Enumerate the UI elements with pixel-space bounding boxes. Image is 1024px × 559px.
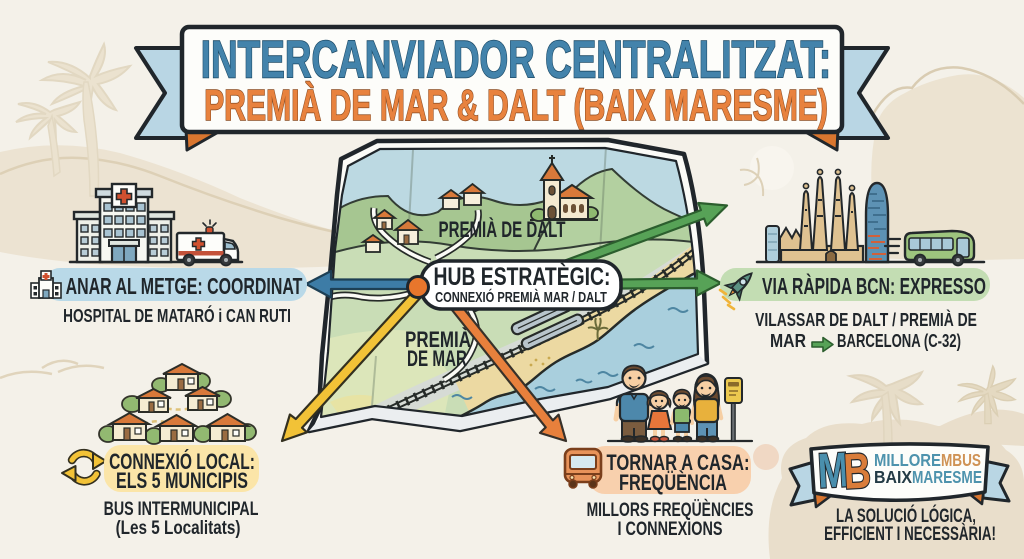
svg-text:I CONNEXIONS: I CONNEXIONS bbox=[618, 518, 723, 539]
svg-text:FREQÜÈNCIA: FREQÜÈNCIA bbox=[619, 470, 727, 496]
svg-text:CONNEXIÓ PREMIÀ MAR / DALT: CONNEXIÓ PREMIÀ MAR / DALT bbox=[435, 289, 607, 306]
svg-text:ELS 5 MUNICIPIS: ELS 5 MUNICIPIS bbox=[116, 470, 248, 494]
svg-text:HOSPITAL DE MATARÓ i CAN RUTI: HOSPITAL DE MATARÓ i CAN RUTI bbox=[63, 305, 291, 327]
svg-text:MARESME: MARESME bbox=[912, 468, 982, 487]
svg-text:PREMIÀ DE MAR & DALT (BAIX MAR: PREMIÀ DE MAR & DALT (BAIX MARESME) bbox=[204, 80, 828, 129]
svg-text:B: B bbox=[842, 443, 872, 500]
svg-text:(Les 5 Localitats): (Les 5 Localitats) bbox=[116, 516, 241, 538]
svg-text:ANAR AL METGE: COORDINAT: ANAR AL METGE: COORDINAT bbox=[66, 274, 303, 300]
svg-text:HUB ESTRATÈGIC:: HUB ESTRATÈGIC: bbox=[434, 263, 611, 291]
svg-text:EFFICIENT I NECESSÀRIA!: EFFICIENT I NECESSÀRIA! bbox=[824, 522, 996, 544]
svg-text:MAR: MAR bbox=[770, 330, 806, 352]
svg-text:VIA RÀPIDA BCN: EXPRESSO: VIA RÀPIDA BCN: EXPRESSO bbox=[762, 273, 986, 300]
svg-text:BAIX: BAIX bbox=[874, 467, 913, 487]
svg-text:BARCELONA (C-32): BARCELONA (C-32) bbox=[837, 331, 961, 352]
svg-text:VILASSAR DE DALT / PREMIÀ DE: VILASSAR DE DALT / PREMIÀ DE bbox=[755, 309, 977, 330]
svg-text:DE MAR: DE MAR bbox=[407, 347, 467, 371]
svg-text:PREMIÀ DE DALT: PREMIÀ DE DALT bbox=[439, 217, 566, 242]
